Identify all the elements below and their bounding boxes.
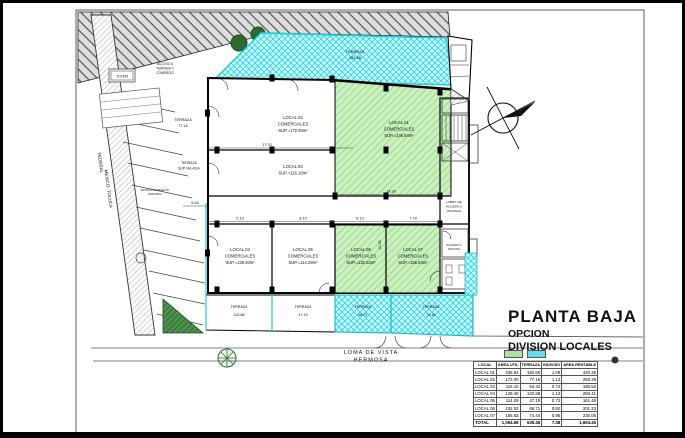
local-01-zone bbox=[335, 81, 451, 196]
local-01-name: LOCAL.01 bbox=[389, 120, 409, 125]
cell: LOCAL 02 bbox=[474, 376, 497, 383]
local-02-name: LOCAL.02 bbox=[283, 115, 303, 120]
table-row: LOCAL 03116.1064.420.73180.52 bbox=[474, 383, 598, 390]
local-04-area: SUP.=128.40m² bbox=[225, 260, 255, 265]
street-tree-icon bbox=[218, 349, 236, 367]
table-row: LOCAL 05114.2947.190.73161.48 bbox=[474, 397, 598, 404]
cell: 0.82 bbox=[542, 405, 562, 412]
access-top-3: COMERCIO bbox=[156, 71, 174, 75]
cell: TOTAL bbox=[474, 419, 497, 426]
sheet-subtitle-1: OPCION bbox=[508, 328, 658, 340]
dim-8-10a: 8.10 bbox=[299, 217, 306, 221]
table-row: LOCAL 04128.40120.881.13250.41 bbox=[474, 390, 598, 397]
terrace-b1-label: TERRAZA bbox=[231, 305, 248, 309]
title-block: PLANTA BAJA OPCION DIVISION LOCALES bbox=[508, 308, 658, 353]
local-07-name: LOCAL.07 bbox=[403, 247, 423, 252]
totem-label: TOTEM bbox=[116, 75, 128, 79]
street-left-name-2: MEXICO- TOLUCA bbox=[103, 169, 113, 208]
street-left-name-1: FEDERAL bbox=[97, 152, 105, 174]
cell: 128.40 bbox=[496, 390, 520, 397]
table-header-row: LOCAL AREA UTIL TERRAZA INDIVISO AREA RE… bbox=[474, 362, 598, 369]
lobby-label-3: OFICINAS bbox=[447, 209, 462, 213]
cell: 161.48 bbox=[562, 397, 598, 404]
cell: 201.23 bbox=[562, 405, 598, 412]
local-06-type: COMERCIALES bbox=[346, 254, 377, 259]
terrace-b3-label: TERRAZA bbox=[355, 305, 372, 309]
col-local: LOCAL bbox=[474, 362, 497, 369]
office-access-label-2: OFICINA bbox=[448, 247, 460, 251]
lobby-label-1: LOBBY DE bbox=[446, 200, 461, 204]
access-top-1: ACCESO A bbox=[157, 62, 174, 66]
local-06-name: LOCAL.06 bbox=[351, 247, 371, 252]
terrace-b4-label: TERRAZA bbox=[423, 305, 440, 309]
cell: LOCAL 03 bbox=[474, 383, 497, 390]
local-04-name: LOCAL.04 bbox=[230, 247, 250, 252]
cell: 1.13 bbox=[542, 390, 562, 397]
access-top-2: TERRAZA Y bbox=[156, 67, 175, 71]
totem-sign: TOTEM bbox=[109, 69, 135, 82]
col-terraza: TERRAZA bbox=[520, 362, 542, 369]
cell: 120.88 bbox=[520, 390, 542, 397]
lobby-label-2: ACCESO A bbox=[446, 205, 463, 209]
terrace-top-value: 182.66 bbox=[349, 55, 362, 60]
cell: LOCAL 04 bbox=[474, 390, 497, 397]
local-02-type: COMERCIALES bbox=[278, 122, 309, 127]
local-01-type: COMERCIALES bbox=[384, 127, 415, 132]
dim-5-84: 5.84 bbox=[191, 201, 198, 205]
table-row: LOCAL 02172.0077.161.13250.39 bbox=[474, 376, 598, 383]
table-row: LOCAL 07155.5374.440.95230.06 bbox=[474, 412, 598, 419]
cell: 0.95 bbox=[542, 412, 562, 419]
cell: 230.06 bbox=[562, 412, 598, 419]
terrace-b3-value: 68.71 bbox=[359, 313, 368, 317]
local-03-area: SUP.=116.10m² bbox=[278, 171, 308, 176]
cell: LOCAL 01 bbox=[474, 369, 497, 376]
areas-table: LOCAL AREA UTIL TERRAZA INDIVISO AREA RE… bbox=[473, 361, 598, 427]
local-03-name: LOCAL 03 bbox=[283, 164, 303, 169]
cell: 114.29 bbox=[496, 397, 520, 404]
terrace-left-value: 77.16 bbox=[178, 124, 188, 128]
local-06-area: SUP.=132.52m² bbox=[346, 260, 376, 265]
cell: LOCAL 06 bbox=[474, 405, 497, 412]
cell: 0.73 bbox=[542, 383, 562, 390]
cell: 250.39 bbox=[562, 376, 598, 383]
terrace-mid-label: TERRAZA bbox=[181, 161, 198, 165]
street-bottom-name-1: LOMA DE VISTA bbox=[344, 350, 398, 356]
legend-cyan-swatch bbox=[527, 350, 546, 358]
local-04-type: COMERCIALES bbox=[225, 254, 256, 259]
terrace-top-label: TERRAZA bbox=[346, 49, 365, 54]
street-bottom-name-2: HERMOSA bbox=[354, 358, 389, 364]
parking-ramp bbox=[99, 88, 162, 128]
legend-green-swatch bbox=[504, 350, 523, 358]
north-arrow-icon bbox=[471, 87, 535, 149]
local-07-type: COMERCIALES bbox=[398, 254, 429, 259]
local-05-type: COMERCIALES bbox=[288, 254, 319, 259]
dim-9-13: 9.13 bbox=[236, 217, 243, 221]
cell: 1,694.45 bbox=[562, 419, 598, 426]
terrace-b4-value: 74.44 bbox=[427, 313, 436, 317]
local-07-area: SUP.=155.53m² bbox=[398, 260, 428, 265]
parking-label-2: PRIVADO bbox=[148, 192, 162, 196]
dim-8-10b: 8.10 bbox=[356, 217, 363, 221]
cell: LOCAL 05 bbox=[474, 397, 497, 404]
cell: 7.38 bbox=[542, 419, 562, 426]
cell: 180.52 bbox=[562, 383, 598, 390]
corner-room bbox=[451, 45, 466, 61]
dim-16-36: 16.36 bbox=[378, 240, 382, 250]
dim-17-20: 17.20 bbox=[262, 143, 272, 147]
cell: 0.73 bbox=[542, 397, 562, 404]
cell: 116.10 bbox=[496, 383, 520, 390]
cell: 155.53 bbox=[496, 412, 520, 419]
cell: 172.00 bbox=[496, 376, 520, 383]
planter-area bbox=[163, 299, 203, 333]
cell: 68.71 bbox=[520, 405, 542, 412]
terrace-b2-value: 47.19 bbox=[299, 313, 308, 317]
sheet-title: PLANTA BAJA bbox=[508, 308, 658, 326]
terrace-b1-value: 120.88 bbox=[234, 313, 245, 317]
cell: 182.66 bbox=[520, 369, 542, 376]
cell: 77.16 bbox=[520, 376, 542, 383]
table-row: LOCAL 06132.5268.710.82201.23 bbox=[474, 405, 598, 412]
col-indiviso: INDIVISO bbox=[542, 362, 562, 369]
cell: 235.84 bbox=[496, 369, 520, 376]
terrace-mid-value: SUP.=64.42m² bbox=[178, 167, 201, 171]
dim-14-38: 14.38 bbox=[386, 190, 396, 194]
cell: LOCAL 07 bbox=[474, 412, 497, 419]
cell: 635.46 bbox=[520, 419, 542, 426]
cell: 47.19 bbox=[520, 397, 542, 404]
table-total-row: TOTAL1,054.68635.467.381,694.45 bbox=[474, 419, 598, 426]
cell: 1,054.68 bbox=[496, 419, 520, 426]
table-row: LOCAL 01235.84182.661.09420.36 bbox=[474, 369, 598, 376]
local-06-07-zone bbox=[335, 225, 440, 293]
cell: 1.13 bbox=[542, 376, 562, 383]
blueprint-sheet: FEDERAL MEXICO- TOLUCA TOTEM ESTACIONAMI… bbox=[0, 0, 685, 438]
local-02-area: SUP.=172.00m² bbox=[278, 128, 308, 133]
terrace-left-label: TERRAZA bbox=[174, 118, 192, 122]
terrace-b2-label: TERRAZA bbox=[295, 305, 312, 309]
col-area-util: AREA UTIL bbox=[496, 362, 520, 369]
cell: 1.09 bbox=[542, 369, 562, 376]
col-area-rentable: AREA RENTABLE bbox=[562, 362, 598, 369]
dim-7-78: 7.78 bbox=[409, 217, 416, 221]
cell: 420.36 bbox=[562, 369, 598, 376]
local-01-area: SUP.=235.84m² bbox=[384, 133, 414, 138]
cell: 132.52 bbox=[496, 405, 520, 412]
cell: 74.44 bbox=[520, 412, 542, 419]
cell: 64.42 bbox=[520, 383, 542, 390]
cell: 250.41 bbox=[562, 390, 598, 397]
local-05-name: LOCAL.05 bbox=[293, 247, 313, 252]
local-05-area: SUP.=114.29m² bbox=[288, 260, 318, 265]
